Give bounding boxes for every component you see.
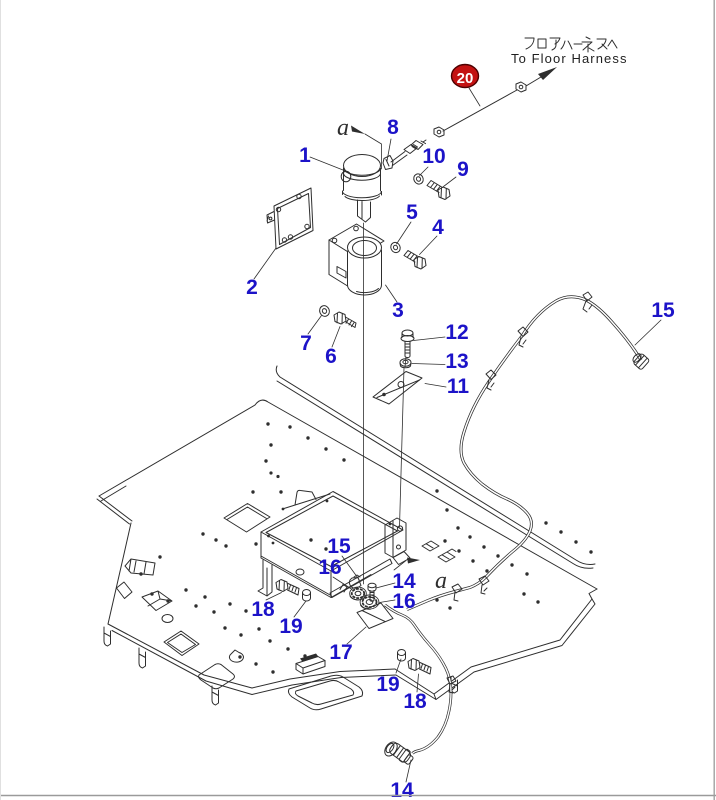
svg-text:5: 5 bbox=[406, 201, 418, 224]
svg-text:2: 2 bbox=[246, 276, 258, 299]
svg-text:3: 3 bbox=[392, 299, 404, 322]
svg-text:18: 18 bbox=[403, 690, 427, 713]
svg-text:4: 4 bbox=[432, 216, 444, 239]
svg-text:13: 13 bbox=[445, 350, 468, 373]
svg-text:7: 7 bbox=[300, 332, 312, 355]
svg-text:10: 10 bbox=[422, 145, 445, 168]
svg-text:18: 18 bbox=[251, 598, 275, 621]
svg-text:a: a bbox=[435, 568, 447, 594]
svg-text:16: 16 bbox=[392, 590, 415, 613]
svg-text:8: 8 bbox=[387, 116, 399, 139]
svg-text:20: 20 bbox=[457, 70, 474, 87]
svg-text:17: 17 bbox=[329, 641, 352, 664]
svg-text:19: 19 bbox=[376, 673, 399, 696]
svg-text:1: 1 bbox=[299, 144, 311, 167]
svg-text:19: 19 bbox=[279, 615, 302, 638]
svg-text:15: 15 bbox=[327, 535, 351, 558]
svg-text:To Floor Harness: To Floor Harness bbox=[511, 51, 628, 66]
svg-text:a: a bbox=[337, 115, 349, 141]
svg-text:15: 15 bbox=[651, 299, 675, 322]
svg-text:14: 14 bbox=[390, 779, 414, 800]
svg-text:6: 6 bbox=[325, 345, 337, 368]
svg-text:12: 12 bbox=[445, 321, 468, 344]
svg-text:11: 11 bbox=[447, 375, 470, 398]
svg-text:16: 16 bbox=[318, 556, 341, 579]
svg-text:9: 9 bbox=[457, 158, 469, 181]
